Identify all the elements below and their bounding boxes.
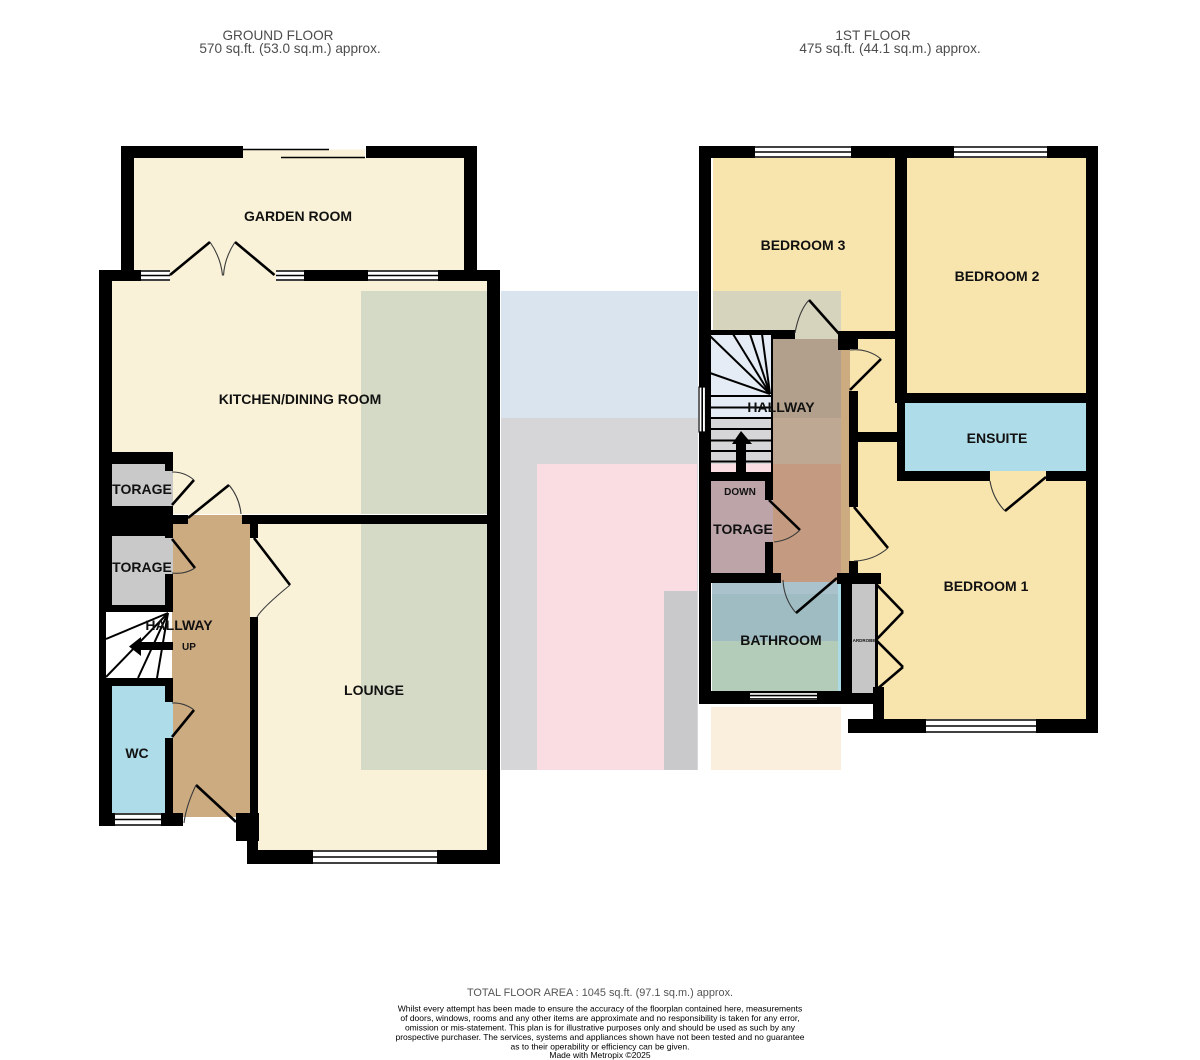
svg-text:TORAGE: TORAGE [713, 521, 773, 537]
svg-text:Made with Metropix ©2025: Made with Metropix ©2025 [549, 1050, 651, 1060]
svg-text:DOWN: DOWN [724, 487, 756, 498]
svg-text:HALLWAY: HALLWAY [145, 617, 213, 633]
svg-text:570 sq.ft. (53.0 sq.m.) approx: 570 sq.ft. (53.0 sq.m.) approx. [199, 41, 380, 56]
svg-text:KITCHEN/DINING ROOM: KITCHEN/DINING ROOM [219, 391, 382, 407]
svg-text:HALLWAY: HALLWAY [747, 399, 815, 415]
svg-text:ENSUITE: ENSUITE [967, 430, 1028, 446]
svg-text:WC: WC [125, 745, 148, 761]
svg-text:TOTAL FLOOR AREA : 1045 sq.ft.: TOTAL FLOOR AREA : 1045 sq.ft. (97.1 sq.… [467, 987, 733, 999]
svg-text:BEDROOM 2: BEDROOM 2 [955, 268, 1040, 284]
svg-text:omission or mis-statement. Thi: omission or mis-statement. This plan is … [405, 1023, 796, 1033]
svg-text:BEDROOM 3: BEDROOM 3 [761, 237, 846, 253]
svg-text:ARDROBE: ARDROBE [853, 638, 876, 643]
svg-text:BEDROOM 1: BEDROOM 1 [944, 578, 1029, 594]
svg-text:TORAGE: TORAGE [112, 559, 172, 575]
svg-text:BATHROOM: BATHROOM [740, 632, 821, 648]
svg-text:LOUNGE: LOUNGE [344, 682, 404, 698]
svg-text:TORAGE: TORAGE [112, 481, 172, 497]
svg-text:UP: UP [182, 642, 196, 653]
svg-text:475 sq.ft. (44.1 sq.m.) approx: 475 sq.ft. (44.1 sq.m.) approx. [799, 41, 980, 56]
svg-text:of doors, windows, rooms and a: of doors, windows, rooms and any other i… [400, 1013, 799, 1023]
svg-text:prospective purchaser. The ser: prospective purchaser. The services, sys… [395, 1032, 804, 1042]
svg-text:GARDEN ROOM: GARDEN ROOM [244, 208, 352, 224]
svg-text:Whilst every attempt has been: Whilst every attempt has been made to en… [398, 1004, 802, 1014]
